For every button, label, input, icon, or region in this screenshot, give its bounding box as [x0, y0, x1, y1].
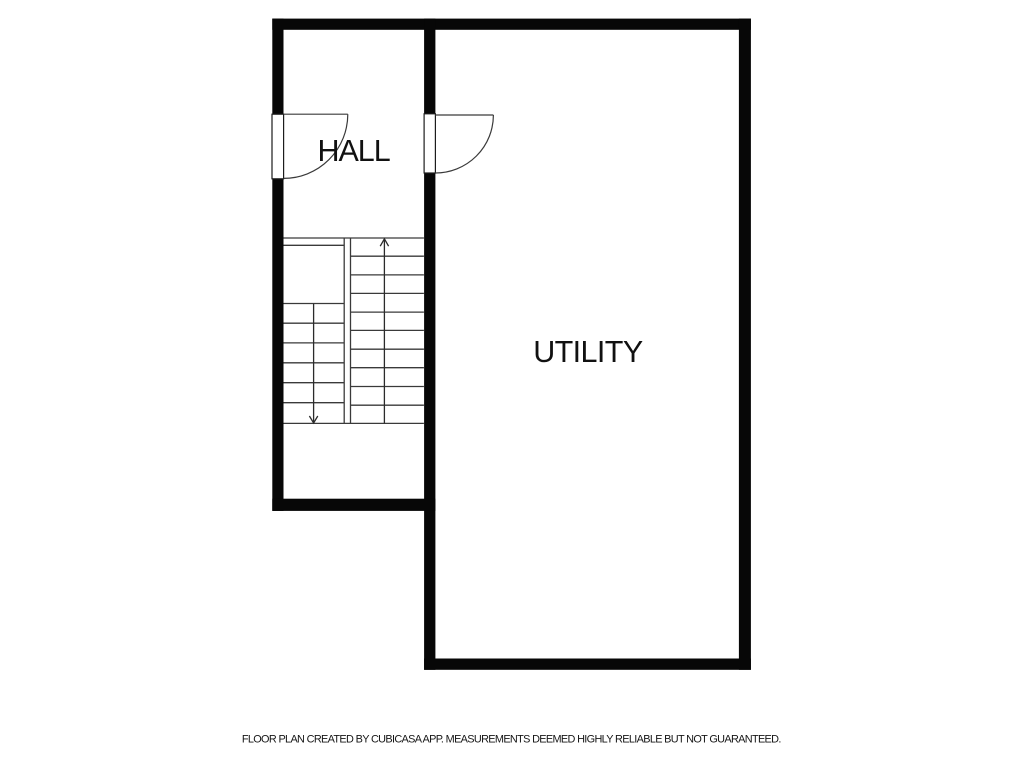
- svg-text:HALL: HALL: [317, 134, 389, 168]
- svg-text:UTILITY: UTILITY: [533, 335, 643, 369]
- svg-text:FLOOR PLAN CREATED BY CUBICASA: FLOOR PLAN CREATED BY CUBICASA APP. MEAS…: [242, 734, 782, 746]
